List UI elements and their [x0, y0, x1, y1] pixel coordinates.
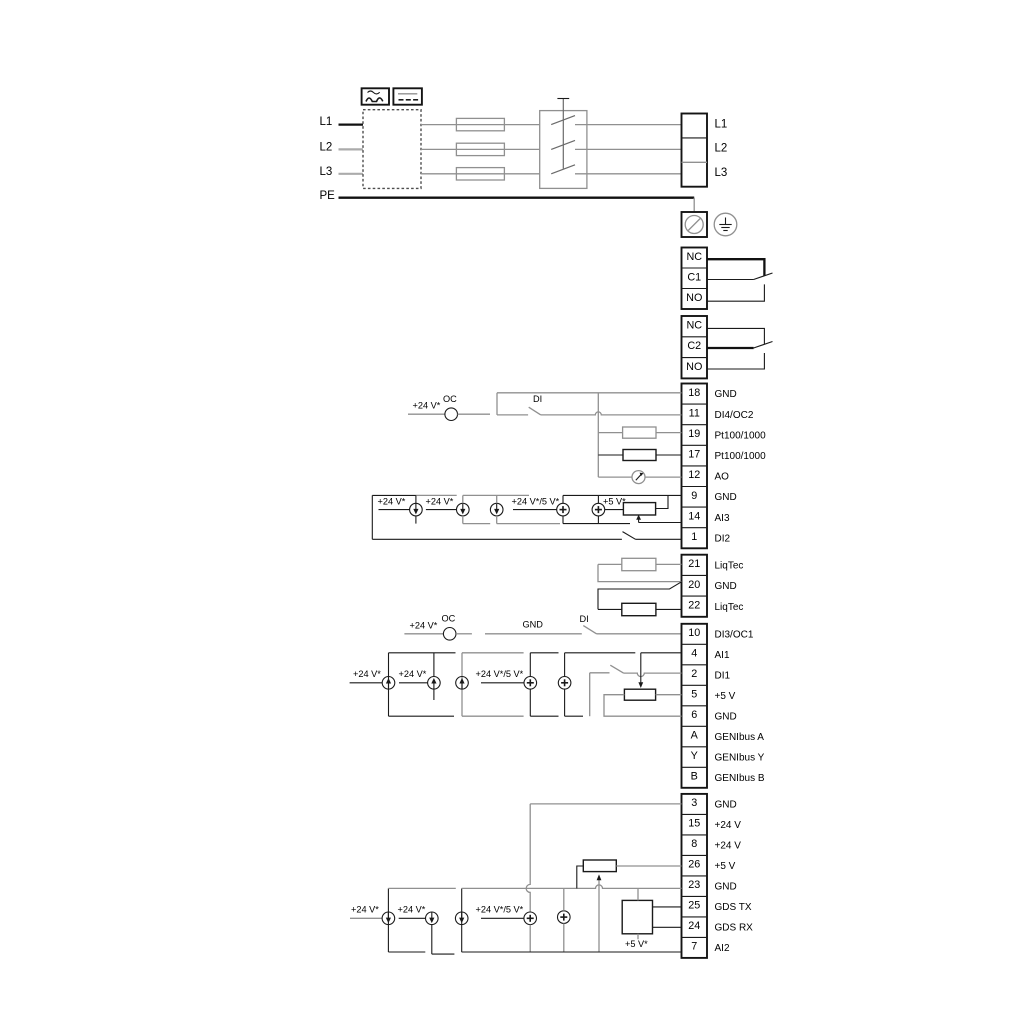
svg-text:DI: DI: [580, 614, 589, 624]
svg-text:GND: GND: [715, 389, 737, 400]
svg-text:21: 21: [688, 558, 700, 570]
svg-text:15: 15: [688, 818, 700, 830]
svg-text:+24 V*: +24 V*: [353, 669, 381, 679]
svg-text:+24 V*: +24 V*: [426, 497, 454, 507]
svg-text:12: 12: [688, 469, 700, 481]
svg-text:17: 17: [688, 449, 700, 461]
svg-text:GND: GND: [715, 492, 737, 503]
svg-text:AO: AO: [715, 472, 730, 483]
svg-text:6: 6: [691, 709, 697, 721]
svg-text:GND: GND: [715, 711, 737, 722]
svg-text:25: 25: [688, 900, 700, 912]
svg-text:GENIbus A: GENIbus A: [715, 732, 765, 743]
svg-text:+24 V: +24 V: [715, 820, 742, 831]
svg-text:L2: L2: [715, 143, 728, 155]
svg-text:3: 3: [691, 797, 697, 809]
svg-text:23: 23: [688, 879, 700, 891]
svg-text:+24 V: +24 V: [715, 841, 742, 852]
svg-text:26: 26: [688, 859, 700, 871]
svg-text:GDS TX: GDS TX: [715, 902, 752, 913]
svg-text:C2: C2: [687, 340, 701, 352]
svg-text:Pt100/1000: Pt100/1000: [715, 451, 767, 462]
svg-text:11: 11: [689, 407, 700, 419]
svg-text:4: 4: [691, 648, 697, 660]
svg-text:DI3/OC1: DI3/OC1: [715, 629, 754, 640]
svg-text:L3: L3: [320, 166, 333, 178]
svg-text:1: 1: [691, 531, 697, 543]
svg-text:GND: GND: [715, 800, 737, 811]
svg-text:9: 9: [691, 490, 697, 502]
svg-text:C1: C1: [687, 271, 701, 283]
svg-text:Y: Y: [691, 750, 698, 762]
svg-text:5: 5: [691, 689, 697, 701]
svg-text:GND: GND: [715, 882, 737, 893]
svg-text:Pt100/1000: Pt100/1000: [715, 430, 767, 441]
svg-text:DI4/OC2: DI4/OC2: [715, 410, 754, 421]
svg-text:DI2: DI2: [715, 533, 731, 544]
svg-text:NO: NO: [686, 292, 702, 304]
svg-text:+24 V*: +24 V*: [351, 905, 379, 915]
svg-text:AI2: AI2: [715, 943, 730, 954]
svg-text:AI1: AI1: [715, 650, 730, 661]
svg-text:8: 8: [691, 838, 697, 850]
svg-text:+5 V*: +5 V*: [603, 497, 626, 507]
svg-text:+24 V*/5 V*: +24 V*/5 V*: [476, 905, 524, 915]
svg-text:10: 10: [688, 627, 700, 639]
svg-text:+24 V*/5 V*: +24 V*/5 V*: [512, 497, 560, 507]
svg-text:AI3: AI3: [715, 513, 730, 524]
svg-text:LiqTec: LiqTec: [715, 560, 744, 571]
svg-text:NC: NC: [686, 251, 702, 263]
svg-text:L1: L1: [715, 119, 728, 131]
svg-text:OC: OC: [442, 614, 456, 624]
svg-text:14: 14: [688, 510, 700, 522]
svg-text:2: 2: [691, 668, 697, 680]
svg-text:+5 V: +5 V: [715, 861, 736, 872]
svg-text:+24 V*/5 V*: +24 V*/5 V*: [476, 669, 524, 679]
svg-text:+24 V*: +24 V*: [399, 669, 427, 679]
svg-text:+24 V*: +24 V*: [413, 401, 441, 411]
svg-text:+5 V*: +5 V*: [625, 939, 648, 949]
svg-text:+24 V*: +24 V*: [398, 905, 426, 915]
svg-text:A: A: [691, 730, 699, 742]
svg-text:OC: OC: [443, 394, 457, 404]
svg-text:B: B: [691, 771, 698, 783]
svg-text:GENIbus B: GENIbus B: [715, 773, 765, 784]
svg-text:7: 7: [691, 941, 697, 953]
svg-text:22: 22: [688, 599, 700, 611]
svg-text:+24 V*: +24 V*: [410, 621, 438, 631]
svg-text:L2: L2: [320, 142, 333, 154]
svg-text:L3: L3: [715, 167, 728, 179]
svg-text:20: 20: [688, 579, 700, 591]
svg-text:DI: DI: [533, 394, 542, 404]
svg-text:NC: NC: [686, 319, 702, 331]
svg-text:24: 24: [688, 920, 700, 932]
svg-text:NO: NO: [686, 361, 702, 373]
svg-text:LiqTec: LiqTec: [715, 602, 744, 613]
svg-text:PE: PE: [320, 190, 336, 202]
svg-text:+5 V: +5 V: [715, 691, 736, 702]
svg-text:18: 18: [688, 387, 700, 399]
svg-text:GND: GND: [715, 581, 737, 592]
svg-text:DI1: DI1: [715, 670, 731, 681]
svg-text:19: 19: [688, 428, 700, 440]
svg-text:L1: L1: [320, 116, 333, 128]
svg-text:GDS RX: GDS RX: [715, 923, 754, 934]
svg-text:GND: GND: [523, 620, 544, 630]
svg-text:+24 V*: +24 V*: [378, 497, 406, 507]
svg-text:GENIbus Y: GENIbus Y: [715, 752, 765, 763]
